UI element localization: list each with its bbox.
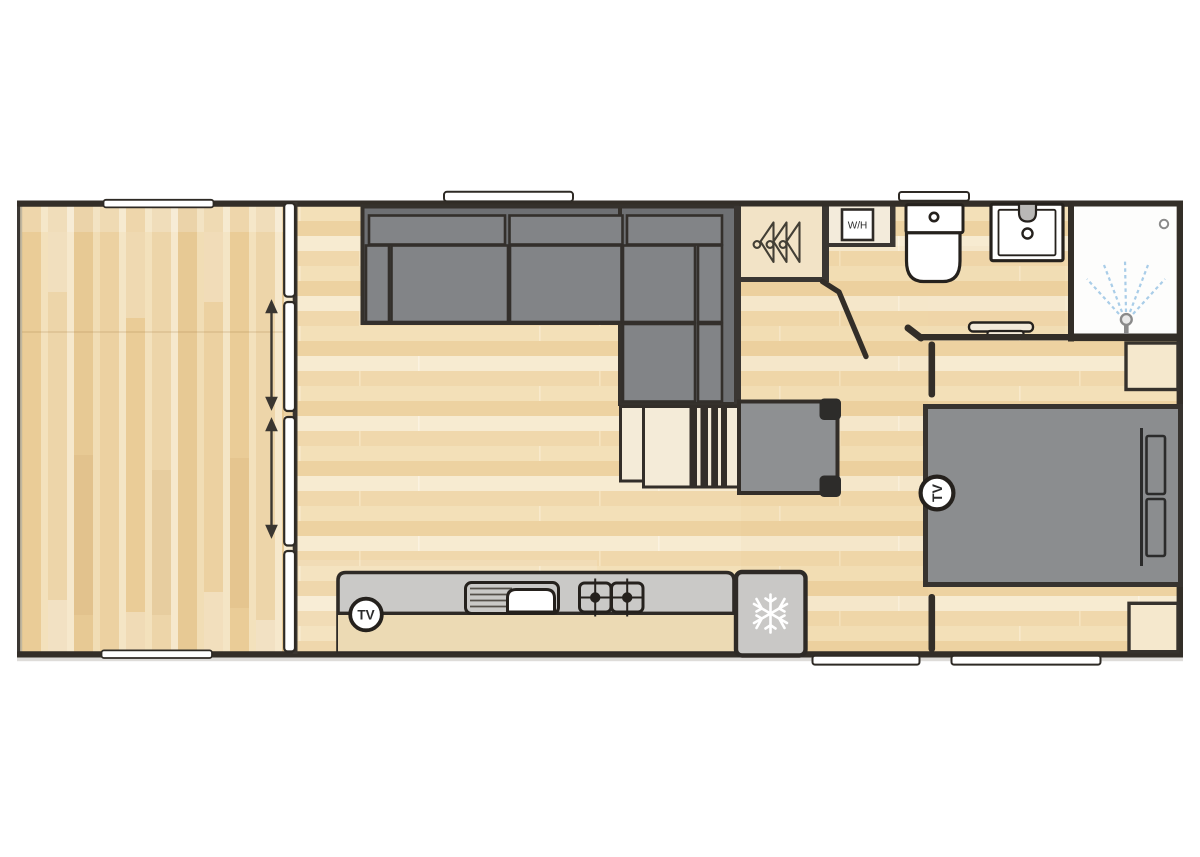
svg-text:TV: TV [929,483,945,502]
svg-text:W/H: W/H [848,221,867,232]
svg-text:TV: TV [357,608,374,623]
